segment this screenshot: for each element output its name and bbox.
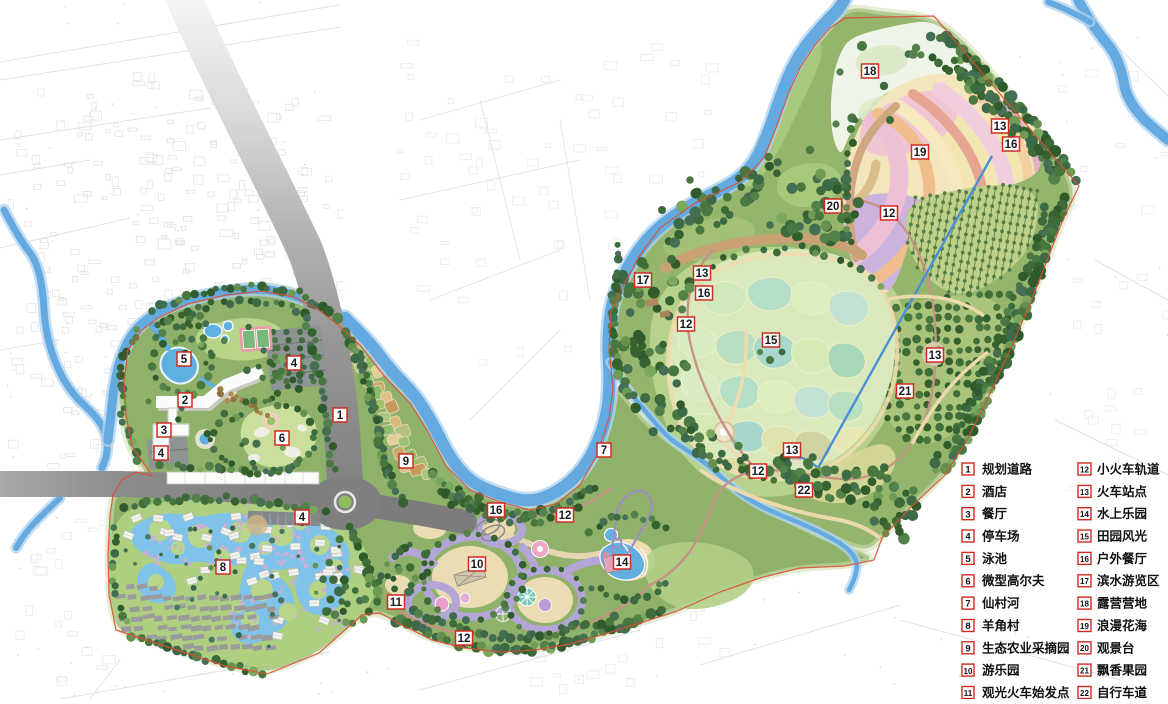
svg-text:13: 13 xyxy=(1080,488,1089,497)
svg-text:6: 6 xyxy=(965,576,970,587)
svg-text:泳池: 泳池 xyxy=(982,551,1008,566)
svg-text:1: 1 xyxy=(965,465,971,476)
svg-text:15: 15 xyxy=(765,335,778,347)
svg-text:15: 15 xyxy=(1080,532,1089,541)
svg-text:停车场: 停车场 xyxy=(982,529,1020,544)
svg-text:田园风光: 田园风光 xyxy=(1097,529,1148,544)
svg-text:13: 13 xyxy=(696,268,709,280)
svg-text:4: 4 xyxy=(965,532,971,543)
svg-text:飘香果园: 飘香果园 xyxy=(1097,663,1147,678)
svg-text:19: 19 xyxy=(1080,622,1089,631)
svg-text:17: 17 xyxy=(1080,577,1089,586)
svg-text:11: 11 xyxy=(964,689,973,698)
svg-text:16: 16 xyxy=(490,505,503,517)
svg-text:22: 22 xyxy=(798,485,811,497)
svg-text:规划道路: 规划道路 xyxy=(982,462,1033,477)
svg-text:5: 5 xyxy=(965,554,971,565)
svg-text:8: 8 xyxy=(965,621,970,632)
svg-text:14: 14 xyxy=(616,557,629,569)
svg-text:21: 21 xyxy=(1080,667,1089,676)
svg-text:餐厅: 餐厅 xyxy=(981,506,1008,521)
svg-text:19: 19 xyxy=(914,147,927,159)
svg-text:游乐园: 游乐园 xyxy=(982,663,1020,678)
svg-text:6: 6 xyxy=(279,433,285,445)
svg-text:17: 17 xyxy=(637,275,650,287)
svg-text:2: 2 xyxy=(965,487,970,498)
svg-text:12: 12 xyxy=(752,466,765,478)
svg-text:9: 9 xyxy=(403,456,409,468)
svg-text:户外餐厅: 户外餐厅 xyxy=(1097,551,1148,566)
svg-text:10: 10 xyxy=(471,559,484,571)
svg-text:观景台: 观景台 xyxy=(1097,640,1135,655)
svg-text:16: 16 xyxy=(1005,139,1018,151)
svg-text:14: 14 xyxy=(1080,510,1089,519)
svg-text:7: 7 xyxy=(601,445,607,457)
svg-text:1: 1 xyxy=(337,410,344,422)
svg-text:4: 4 xyxy=(299,512,306,524)
svg-text:16: 16 xyxy=(1080,555,1089,564)
svg-text:羊角村: 羊角村 xyxy=(982,618,1020,633)
svg-text:13: 13 xyxy=(994,121,1007,133)
svg-text:2: 2 xyxy=(182,395,188,407)
svg-text:露营营地: 露营营地 xyxy=(1097,596,1148,611)
svg-text:浪漫花海: 浪漫花海 xyxy=(1097,618,1148,633)
svg-text:微型高尔夫: 微型高尔夫 xyxy=(981,573,1045,588)
svg-text:5: 5 xyxy=(181,354,188,366)
svg-text:酒店: 酒店 xyxy=(982,484,1008,499)
svg-text:生态农业采摘园: 生态农业采摘园 xyxy=(982,640,1070,655)
svg-text:3: 3 xyxy=(161,425,167,437)
svg-text:自行车道: 自行车道 xyxy=(1097,685,1148,699)
svg-text:12: 12 xyxy=(1080,465,1089,474)
svg-text:20: 20 xyxy=(827,201,840,213)
svg-text:水上乐园: 水上乐园 xyxy=(1097,506,1147,521)
svg-text:小火车轨道: 小火车轨道 xyxy=(1096,462,1160,477)
svg-text:火车站点: 火车站点 xyxy=(1097,484,1148,499)
svg-text:9: 9 xyxy=(965,643,970,654)
svg-text:18: 18 xyxy=(1080,600,1089,609)
svg-text:22: 22 xyxy=(1080,689,1089,698)
svg-text:20: 20 xyxy=(1080,644,1089,653)
svg-text:16: 16 xyxy=(698,288,711,300)
svg-text:13: 13 xyxy=(929,350,942,362)
svg-text:12: 12 xyxy=(883,208,896,220)
svg-text:18: 18 xyxy=(864,66,877,78)
svg-text:12: 12 xyxy=(458,633,471,645)
svg-text:10: 10 xyxy=(964,667,973,676)
svg-text:12: 12 xyxy=(559,510,572,522)
svg-text:11: 11 xyxy=(390,597,403,609)
svg-text:观光火车始发点: 观光火车始发点 xyxy=(982,685,1070,699)
svg-text:滨水游览区: 滨水游览区 xyxy=(1097,573,1160,588)
svg-text:8: 8 xyxy=(220,562,227,574)
svg-text:13: 13 xyxy=(786,445,799,457)
svg-text:12: 12 xyxy=(680,319,693,331)
svg-text:3: 3 xyxy=(965,509,970,520)
svg-text:4: 4 xyxy=(158,448,165,460)
svg-text:21: 21 xyxy=(899,386,912,398)
svg-text:仙村河: 仙村河 xyxy=(982,596,1020,611)
svg-text:4: 4 xyxy=(291,358,298,370)
svg-text:7: 7 xyxy=(965,599,970,610)
